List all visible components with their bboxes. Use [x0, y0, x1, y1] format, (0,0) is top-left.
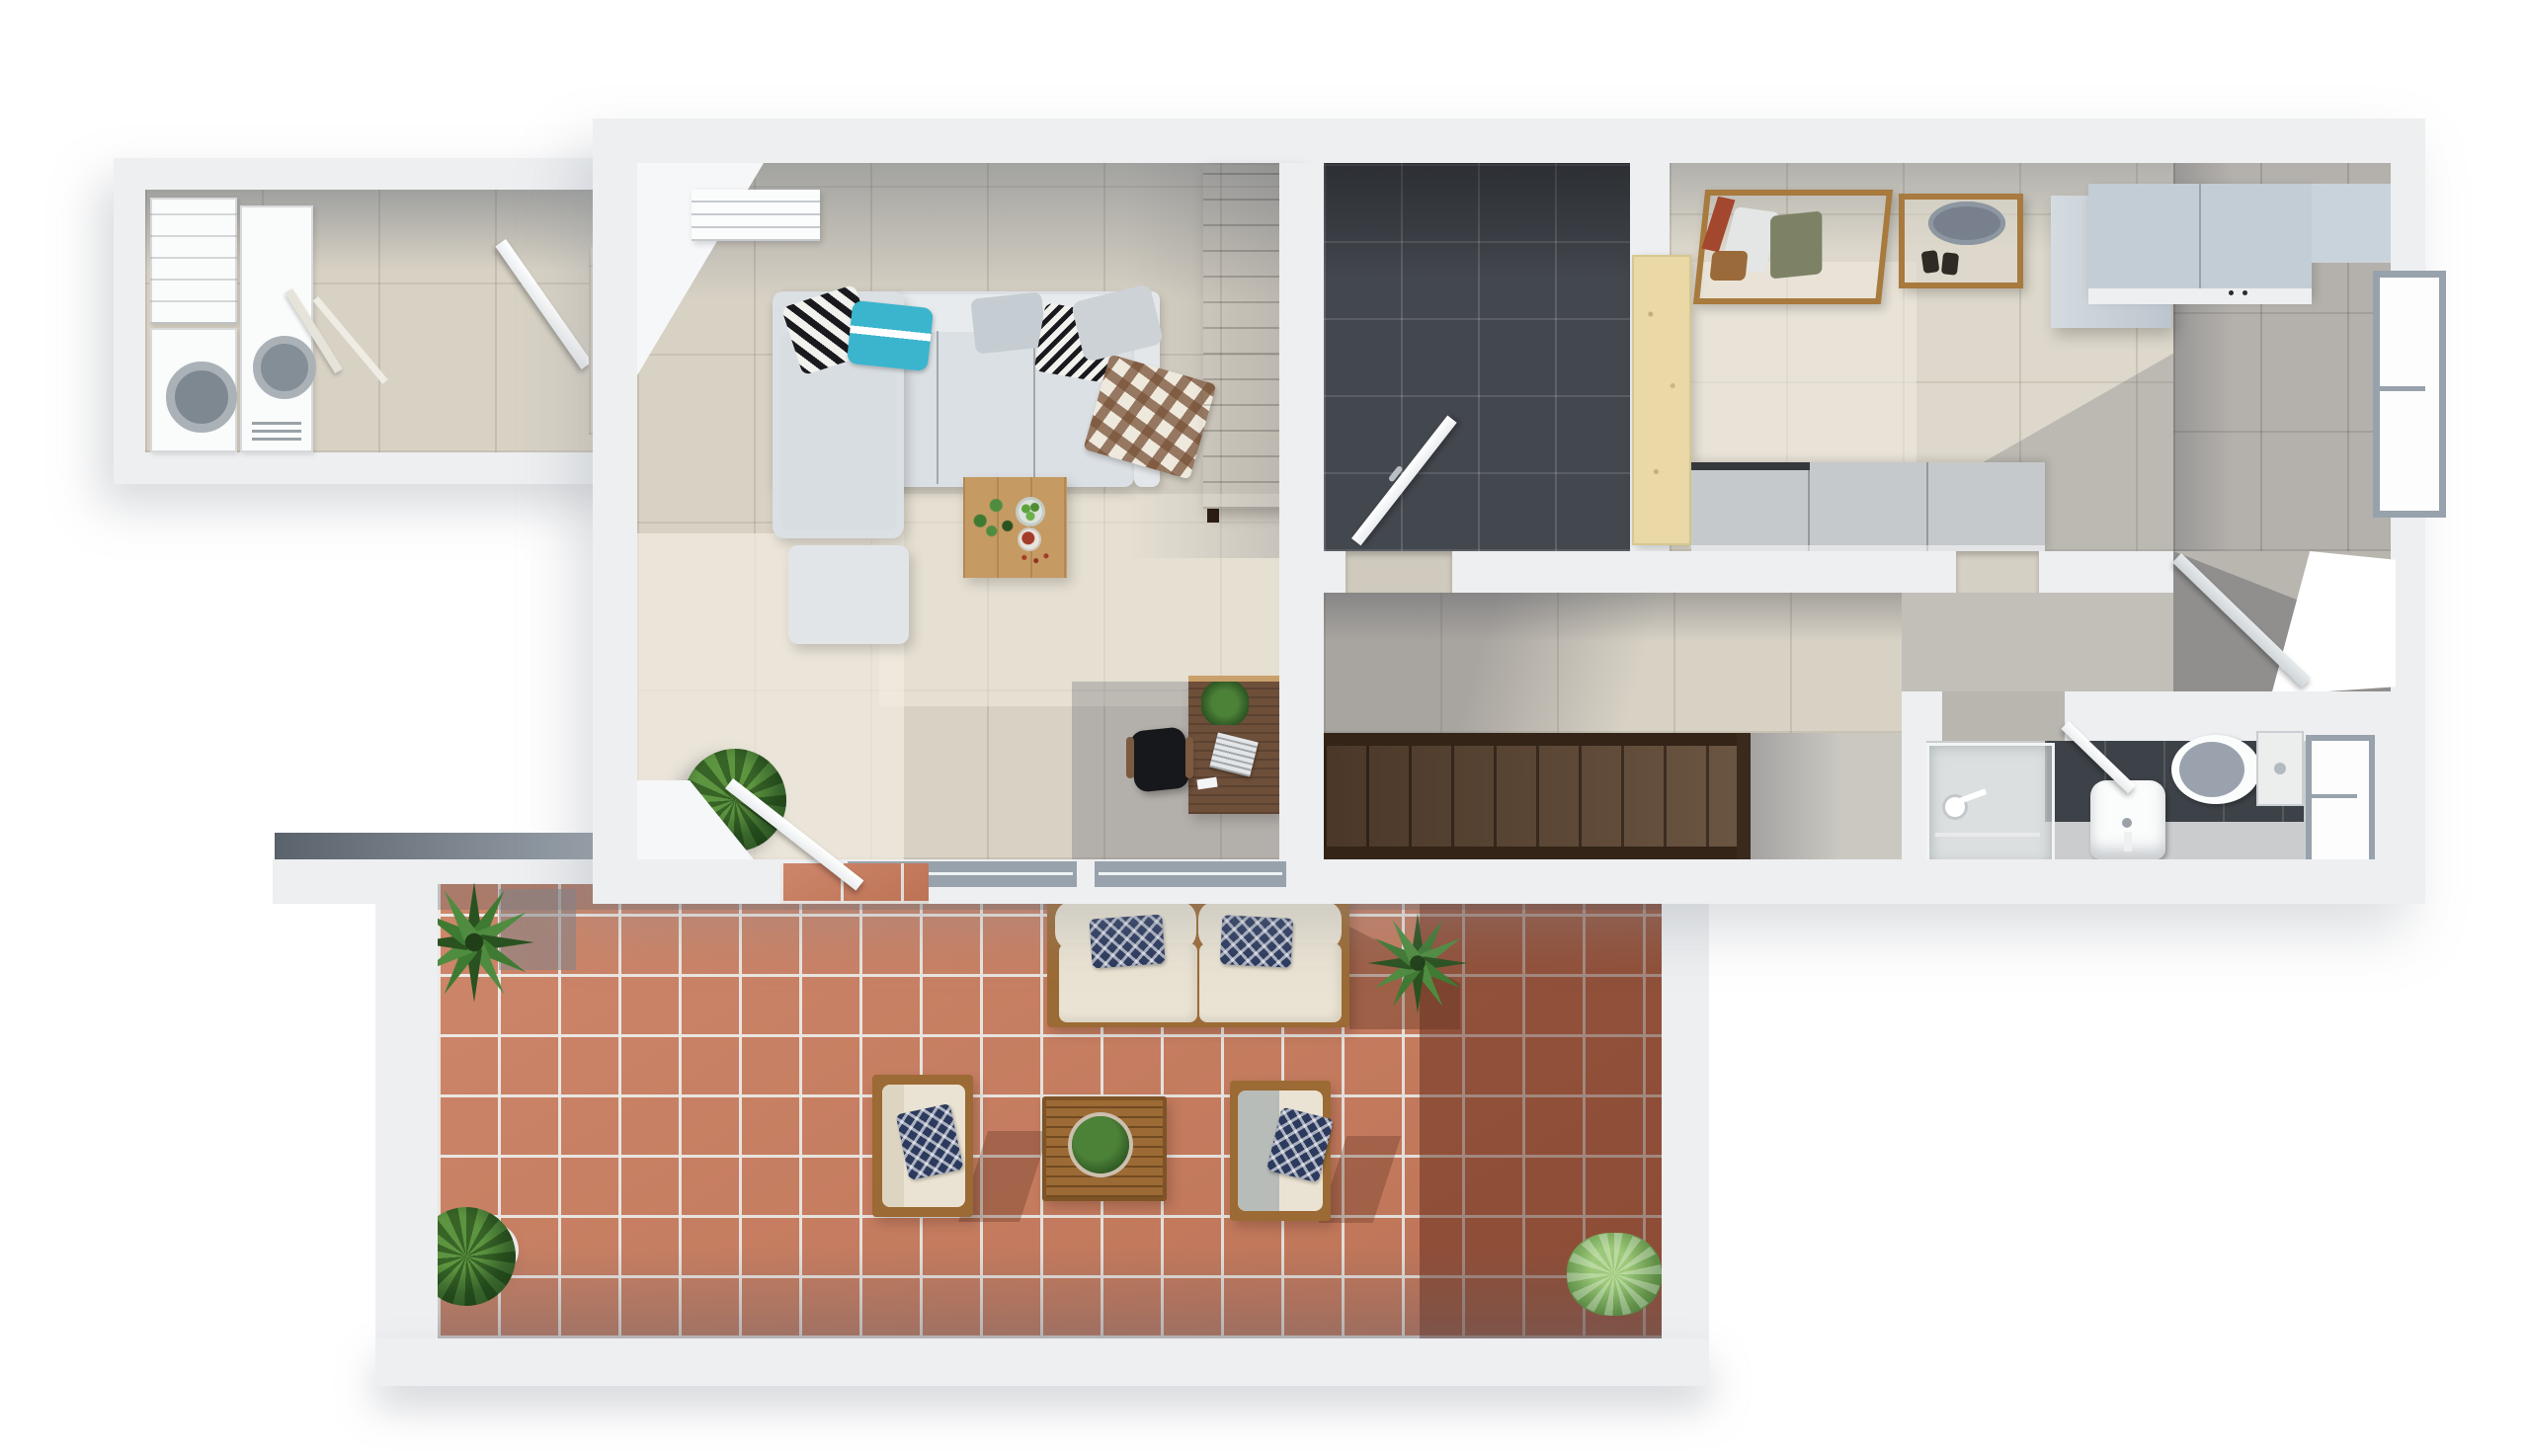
armchair	[1230, 1081, 1331, 1221]
stair-rail	[1324, 733, 1788, 746]
outdoor-sofa	[1047, 892, 1349, 1027]
radiator	[692, 190, 820, 241]
agave-plant-icon	[1363, 909, 1472, 1017]
storage-shelf	[150, 198, 237, 324]
wall-shade	[1324, 163, 1630, 282]
flush-button-icon	[2274, 763, 2286, 774]
wardrobe-leg	[1207, 509, 1219, 523]
table-planter	[1072, 1116, 1129, 1173]
cooktop-knob-icon	[2243, 290, 2247, 295]
bathroom-door-gap	[1942, 691, 2065, 741]
kitchen-corner-counter	[2312, 184, 2391, 263]
window-mullion	[2312, 794, 2357, 798]
berry-crumbs	[1018, 551, 1051, 567]
cushion-seam	[937, 331, 938, 484]
ikat-pillow	[1089, 914, 1165, 968]
kitchen-window	[2373, 271, 2446, 518]
window-glass	[1099, 872, 1282, 875]
chair-armrest	[1185, 737, 1193, 778]
drain-icon	[2122, 818, 2132, 828]
pale-wood-panel	[1632, 255, 1691, 545]
shoe-shelf	[1899, 194, 2023, 288]
cooktop-knob-icon	[2229, 290, 2234, 295]
armchair	[872, 1075, 973, 1217]
gray-pillow	[970, 291, 1046, 354]
shower-cabin	[1926, 743, 2055, 868]
dressing-threshold	[1956, 551, 2039, 593]
toilet-lid	[2179, 742, 2244, 797]
shower-arm	[1959, 788, 1987, 803]
diagonal-shade	[1324, 593, 1902, 733]
armchair-back	[882, 1085, 904, 1207]
toilet-tank	[2256, 731, 2304, 806]
faucet-icon	[2124, 832, 2132, 851]
variegated-plant	[1567, 1233, 1662, 1316]
cabinet-seam	[1808, 462, 1810, 553]
terrace-bottom-shade	[438, 1247, 1662, 1338]
berry-bowl-red	[1018, 527, 1041, 551]
leaf-texture	[1567, 1233, 1662, 1316]
living-window	[1095, 861, 1286, 887]
shoes	[1709, 251, 1748, 281]
bathroom-window	[2306, 735, 2375, 869]
desk-plant	[1201, 682, 1249, 725]
dryer-door-icon	[253, 336, 316, 399]
clothes-rack	[1693, 190, 1893, 304]
teal-pillow	[847, 300, 934, 371]
cabinet-dark-edge	[1691, 462, 1810, 470]
cushion-seam	[1033, 331, 1035, 484]
ottoman	[788, 545, 909, 644]
low-cabinet-row	[1691, 462, 2045, 553]
office-chair	[1129, 726, 1190, 793]
coffee-table	[1042, 1096, 1167, 1201]
washing-machine	[150, 328, 237, 452]
window-mullion	[2380, 386, 2425, 391]
chair-armrest	[1126, 737, 1134, 778]
dryer-stack	[240, 205, 313, 452]
hanging-clothes	[1770, 210, 1822, 279]
stair-end-cap	[1737, 733, 1751, 859]
kitchen-counter	[2088, 184, 2312, 296]
counter-front-edge	[2088, 288, 2312, 304]
fruit-bowl-green	[1016, 497, 1045, 526]
ikat-pillow	[1220, 915, 1294, 968]
wall	[1279, 163, 1324, 859]
vent-lines	[252, 417, 301, 441]
terrace-bottom-wall	[375, 1338, 1709, 1386]
shower-rail	[1935, 833, 2040, 837]
floor-plan-render	[0, 0, 2529, 1456]
shower-room-floor	[1324, 163, 1630, 551]
cabinet-seam	[1926, 462, 1928, 553]
terrace-left-wall	[375, 884, 438, 1383]
terrace-ledge-shadow	[275, 833, 599, 862]
stair-landing	[1751, 733, 1902, 859]
hat-box	[1928, 202, 2005, 245]
wall	[1902, 691, 1929, 864]
stair-rail	[1324, 847, 1751, 859]
toilet-bowl	[2171, 735, 2260, 804]
staircase	[1324, 733, 1751, 859]
shoes	[1921, 250, 1940, 274]
shower-room-threshold	[1346, 551, 1452, 593]
hallway-floor-right	[1902, 593, 2173, 691]
washer-door-icon	[166, 362, 237, 433]
counter-seam	[2199, 184, 2201, 296]
hallway-floor	[1324, 593, 1902, 733]
table-plant-sprig	[971, 490, 1017, 541]
terrace-right-wall	[1662, 859, 1709, 1383]
shoes	[1941, 252, 1959, 276]
